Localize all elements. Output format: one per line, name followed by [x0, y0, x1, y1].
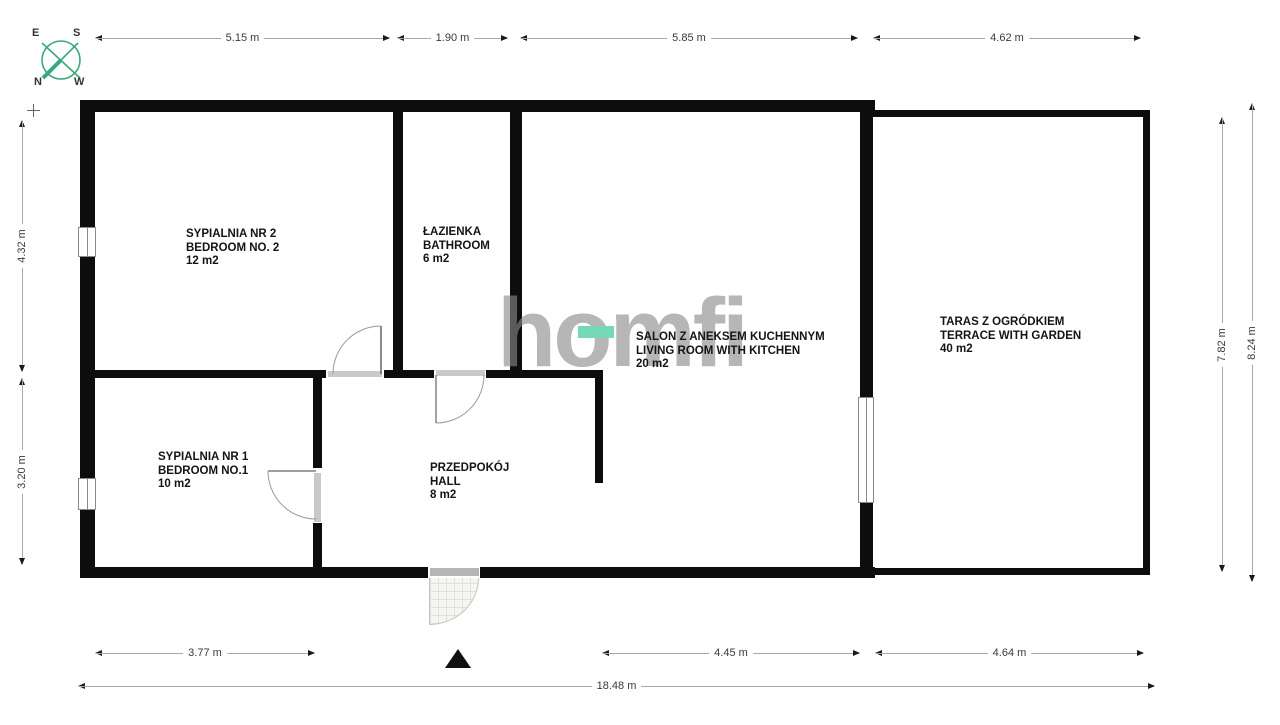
room-name-en: BEDROOM NO.1	[158, 465, 248, 479]
room-label-living-room: SALON Z ANEKSEM KUCHENNYM LIVING ROOM WI…	[636, 331, 825, 372]
homfi-watermark-accent	[578, 326, 614, 338]
dimension-right-1: 7.82 m	[1215, 117, 1229, 572]
dimension-label: 4.62 m	[985, 32, 1029, 44]
dimension-label: 3.77 m	[183, 647, 227, 659]
dimension-label: 7.82 m	[1216, 323, 1228, 367]
dimension-label: 5.15 m	[221, 32, 265, 44]
room-name-en: BEDROOM NO. 2	[186, 242, 279, 256]
dimension-bottom-1: 3.77 m	[95, 646, 315, 660]
dimension-label: 8.24 m	[1246, 321, 1258, 365]
room-label-bathroom: ŁAZIENKA BATHROOM 6 m2	[423, 226, 490, 267]
room-label-hall: PRZEDPOKÓJ HALL 8 m2	[430, 462, 509, 503]
dimension-label: 4.64 m	[988, 647, 1032, 659]
room-label-bedroom-1: SYPIALNIA NR 1 BEDROOM NO.1 10 m2	[158, 451, 248, 492]
room-area: 20 m2	[636, 358, 825, 372]
dimension-left-1: 4.32 m	[15, 120, 29, 372]
room-name-pl: SYPIALNIA NR 2	[186, 228, 279, 242]
dimension-top-3: 5.85 m	[520, 31, 858, 45]
room-area: 12 m2	[186, 255, 279, 269]
room-name-pl: ŁAZIENKA	[423, 226, 490, 240]
dimension-bottom-3: 4.64 m	[875, 646, 1144, 660]
room-area: 6 m2	[423, 253, 490, 267]
dimension-label: 5.85 m	[667, 32, 711, 44]
room-area: 10 m2	[158, 478, 248, 492]
dimension-right-2: 8.24 m	[1245, 103, 1259, 582]
room-label-bedroom-2: SYPIALNIA NR 2 BEDROOM NO. 2 12 m2	[186, 228, 279, 269]
dimension-top-4: 4.62 m	[873, 31, 1141, 45]
dimension-bottom-2: 4.45 m	[602, 646, 860, 660]
room-name-en: TERRACE WITH GARDEN	[940, 330, 1081, 344]
dimension-left-2: 3.20 m	[15, 378, 29, 565]
floor-plan: E S N W homfi SYPIALNIA	[0, 0, 1280, 725]
room-name-pl: TARAS Z OGRÓDKIEM	[940, 316, 1081, 330]
dimension-label: 1.90 m	[431, 32, 475, 44]
room-name-en: HALL	[430, 476, 509, 490]
dimension-label: 4.45 m	[709, 647, 753, 659]
room-name-en: BATHROOM	[423, 240, 490, 254]
dimension-label: 3.20 m	[16, 450, 28, 494]
room-label-terrace: TARAS Z OGRÓDKIEM TERRACE WITH GARDEN 40…	[940, 316, 1081, 357]
dimension-label: 18.48 m	[592, 680, 642, 692]
room-area: 40 m2	[940, 343, 1081, 357]
room-name-en: LIVING ROOM WITH KITCHEN	[636, 345, 825, 359]
dimension-top-1: 5.15 m	[95, 31, 390, 45]
room-area: 8 m2	[430, 489, 509, 503]
dimension-total-width: 18.48 m	[78, 679, 1155, 693]
room-name-pl: SALON Z ANEKSEM KUCHENNYM	[636, 331, 825, 345]
entrance-arrow-icon	[445, 649, 471, 668]
dimension-top-2: 1.90 m	[397, 31, 508, 45]
dimension-label: 4.32 m	[16, 224, 28, 268]
room-name-pl: PRZEDPOKÓJ	[430, 462, 509, 476]
room-name-pl: SYPIALNIA NR 1	[158, 451, 248, 465]
